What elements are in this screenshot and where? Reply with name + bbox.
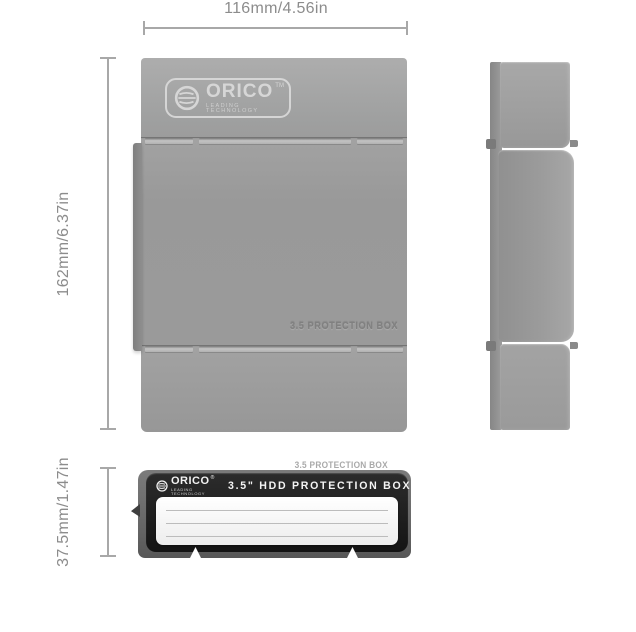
height-dimension-label: 162mm/6.37in [54, 144, 74, 344]
product-dimension-diagram: 116mm/4.56in 162mm/6.37in 37.5mm/1.47in [0, 0, 636, 632]
orico-logo-plate: ORICO TM LEADING TECHNOLOGY [165, 78, 291, 118]
side-middle-section [498, 150, 574, 342]
depth-dimension-line [100, 467, 116, 557]
dimension-tick [406, 21, 408, 35]
spine-latch-tab [131, 504, 140, 517]
dimension-line [107, 467, 109, 557]
vent-slot [357, 138, 403, 144]
side-view-rendering [486, 62, 580, 430]
vent-slot [357, 346, 403, 352]
orico-logo-icon [174, 85, 200, 111]
side-top-section [500, 62, 570, 148]
dimension-tick [100, 467, 116, 469]
label-ruled-line [166, 523, 388, 524]
side-hinge-notch [486, 139, 496, 149]
brand-tagline: LEADING TECHNOLOGY [171, 488, 214, 496]
spine-title-band: ORICO ® LEADING TECHNOLOGY 3.5" HDD PROT… [156, 476, 400, 496]
width-dimension-line [143, 21, 408, 35]
front-view-rendering: ORICO TM LEADING TECHNOLOGY 3.5 PROTECTI… [141, 58, 407, 432]
front-bottom-section [141, 347, 407, 432]
front-left-latch-tab [133, 143, 142, 351]
orico-logo-text: ORICO TM LEADING TECHNOLOGY [206, 82, 289, 115]
brand-name: ORICO [171, 476, 210, 487]
label-ruled-line [166, 510, 388, 511]
writable-label-area [156, 497, 398, 545]
orico-logo-text: ORICO ® LEADING TECHNOLOGY [171, 476, 214, 496]
dimension-line [107, 57, 109, 430]
side-bottom-section [500, 344, 570, 430]
registered-symbol: ® [211, 476, 215, 481]
dimension-line [143, 27, 408, 29]
vent-slot [145, 346, 193, 352]
vent-slot [199, 138, 351, 144]
label-ruled-line [166, 536, 388, 537]
spine-black-face: ORICO ® LEADING TECHNOLOGY 3.5" HDD PROT… [146, 473, 408, 552]
width-dimension-label: 116mm/4.56in [143, 0, 409, 18]
brand-name: ORICO [206, 82, 273, 101]
front-lower-seam [141, 345, 407, 354]
height-dimension-line [100, 57, 116, 430]
side-clip-tab [570, 342, 578, 349]
depth-dimension-label: 37.5mm/1.47in [54, 412, 74, 612]
vent-slot [145, 138, 193, 144]
orico-logo-icon [156, 480, 168, 492]
product-title: 3.5" HDD PROTECTION BOX [228, 480, 411, 492]
vent-slot [199, 346, 351, 352]
brand-tagline: LEADING TECHNOLOGY [206, 104, 289, 115]
dimension-tick [100, 57, 116, 59]
side-clip-tab [570, 140, 578, 147]
dimension-tick [100, 555, 116, 557]
spine-view-rendering: 3.5 PROTECTION BOX ORICO ® LEADING TECHN… [131, 455, 417, 565]
front-embossed-text: 3.5 PROTECTION BOX [290, 321, 391, 332]
trademark-symbol: TM [275, 83, 284, 89]
dimension-tick [100, 428, 116, 430]
front-middle-section [141, 139, 407, 347]
side-hinge-notch [486, 341, 496, 351]
dimension-tick [143, 21, 145, 35]
spine-embossed-text: 3.5 PROTECTION BOX [295, 460, 378, 470]
front-upper-seam [141, 137, 407, 146]
